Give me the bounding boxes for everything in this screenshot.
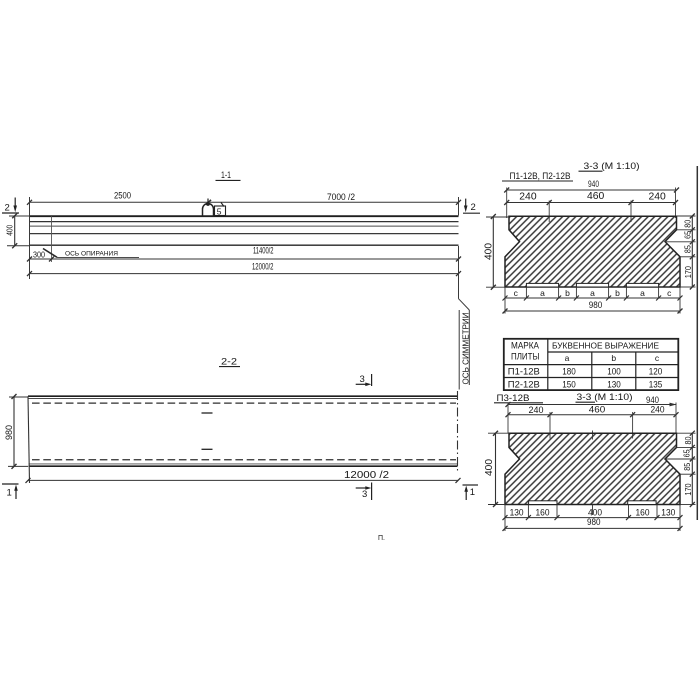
svg-text:240: 240 — [649, 191, 667, 202]
svg-text:130: 130 — [661, 507, 675, 517]
svg-text:a: a — [565, 353, 570, 363]
svg-text:ПЛИТЫ: ПЛИТЫ — [511, 351, 540, 361]
svg-text:МАРКА: МАРКА — [511, 340, 539, 350]
svg-text:400: 400 — [484, 458, 495, 476]
svg-text:980: 980 — [4, 425, 14, 440]
svg-text:150: 150 — [562, 380, 576, 390]
svg-text:2: 2 — [5, 203, 10, 214]
svg-text:a: a — [540, 288, 545, 298]
svg-text:П2-12В: П2-12В — [508, 380, 540, 390]
svg-text:160: 160 — [536, 507, 550, 517]
svg-text:135: 135 — [649, 380, 663, 390]
svg-text:3-3 (М 1:10): 3-3 (М 1:10) — [577, 392, 633, 402]
svg-text:b: b — [611, 353, 616, 363]
svg-text:2: 2 — [471, 202, 476, 213]
svg-text:c: c — [667, 288, 672, 298]
svg-text:130: 130 — [510, 507, 524, 517]
svg-text:a: a — [640, 288, 645, 298]
svg-text:b: b — [615, 288, 620, 298]
svg-text:65: 65 — [683, 231, 693, 239]
svg-text:12000 /2: 12000 /2 — [344, 470, 389, 481]
svg-text:85: 85 — [683, 245, 693, 253]
svg-text:ОСЬ ОПИРАНИЯ: ОСЬ ОПИРАНИЯ — [65, 251, 118, 258]
svg-text:1: 1 — [7, 488, 12, 499]
svg-text:300: 300 — [33, 251, 46, 260]
svg-text:5: 5 — [217, 206, 222, 216]
svg-text:65: 65 — [681, 449, 691, 457]
svg-text:П.: П. — [378, 535, 385, 542]
svg-text:170: 170 — [683, 483, 693, 495]
svg-text:П1-12В: П1-12В — [508, 367, 540, 377]
svg-text:7000 /2: 7000 /2 — [327, 192, 355, 202]
svg-text:БУКВЕННОЕ ВЫРАЖЕНИЕ: БУКВЕННОЕ ВЫРАЖЕНИЕ — [552, 340, 659, 350]
svg-text:2500: 2500 — [114, 191, 131, 201]
svg-text:180: 180 — [562, 367, 576, 377]
svg-text:980: 980 — [589, 300, 603, 311]
svg-text:940: 940 — [588, 179, 599, 190]
svg-text:80: 80 — [683, 436, 693, 444]
svg-text:80: 80 — [683, 219, 693, 227]
svg-text:b: b — [565, 288, 570, 298]
svg-text:c: c — [514, 288, 519, 298]
svg-text:400: 400 — [588, 507, 602, 517]
svg-text:a: a — [590, 288, 595, 298]
svg-text:3: 3 — [362, 489, 367, 500]
svg-text:120: 120 — [649, 367, 663, 377]
svg-text:240: 240 — [529, 405, 544, 415]
svg-text:П3-12В: П3-12В — [497, 393, 530, 404]
svg-text:1-1: 1-1 — [221, 170, 231, 181]
svg-text:ОСЬ СИММЕТРИИ: ОСЬ СИММЕТРИИ — [461, 312, 470, 384]
svg-text:3: 3 — [360, 374, 365, 385]
svg-text:460: 460 — [587, 191, 605, 202]
svg-text:П1-12В, П2-12В: П1-12В, П2-12В — [510, 171, 571, 181]
svg-text:400: 400 — [483, 242, 494, 260]
svg-text:130: 130 — [607, 380, 621, 390]
svg-text:11400/2: 11400/2 — [253, 246, 274, 256]
svg-text:1: 1 — [470, 487, 475, 498]
svg-text:240: 240 — [519, 191, 537, 202]
svg-text:2-2: 2-2 — [221, 356, 237, 367]
svg-text:170: 170 — [683, 266, 693, 278]
svg-text:100: 100 — [607, 367, 621, 377]
svg-text:85: 85 — [682, 463, 692, 471]
svg-text:460: 460 — [589, 405, 606, 415]
svg-text:400: 400 — [6, 224, 15, 236]
svg-text:160: 160 — [636, 507, 650, 517]
svg-text:980: 980 — [587, 517, 601, 528]
svg-text:240: 240 — [651, 405, 665, 415]
svg-text:3-3 (М 1:10): 3-3 (М 1:10) — [584, 161, 640, 171]
svg-text:12000/2: 12000/2 — [252, 261, 274, 271]
